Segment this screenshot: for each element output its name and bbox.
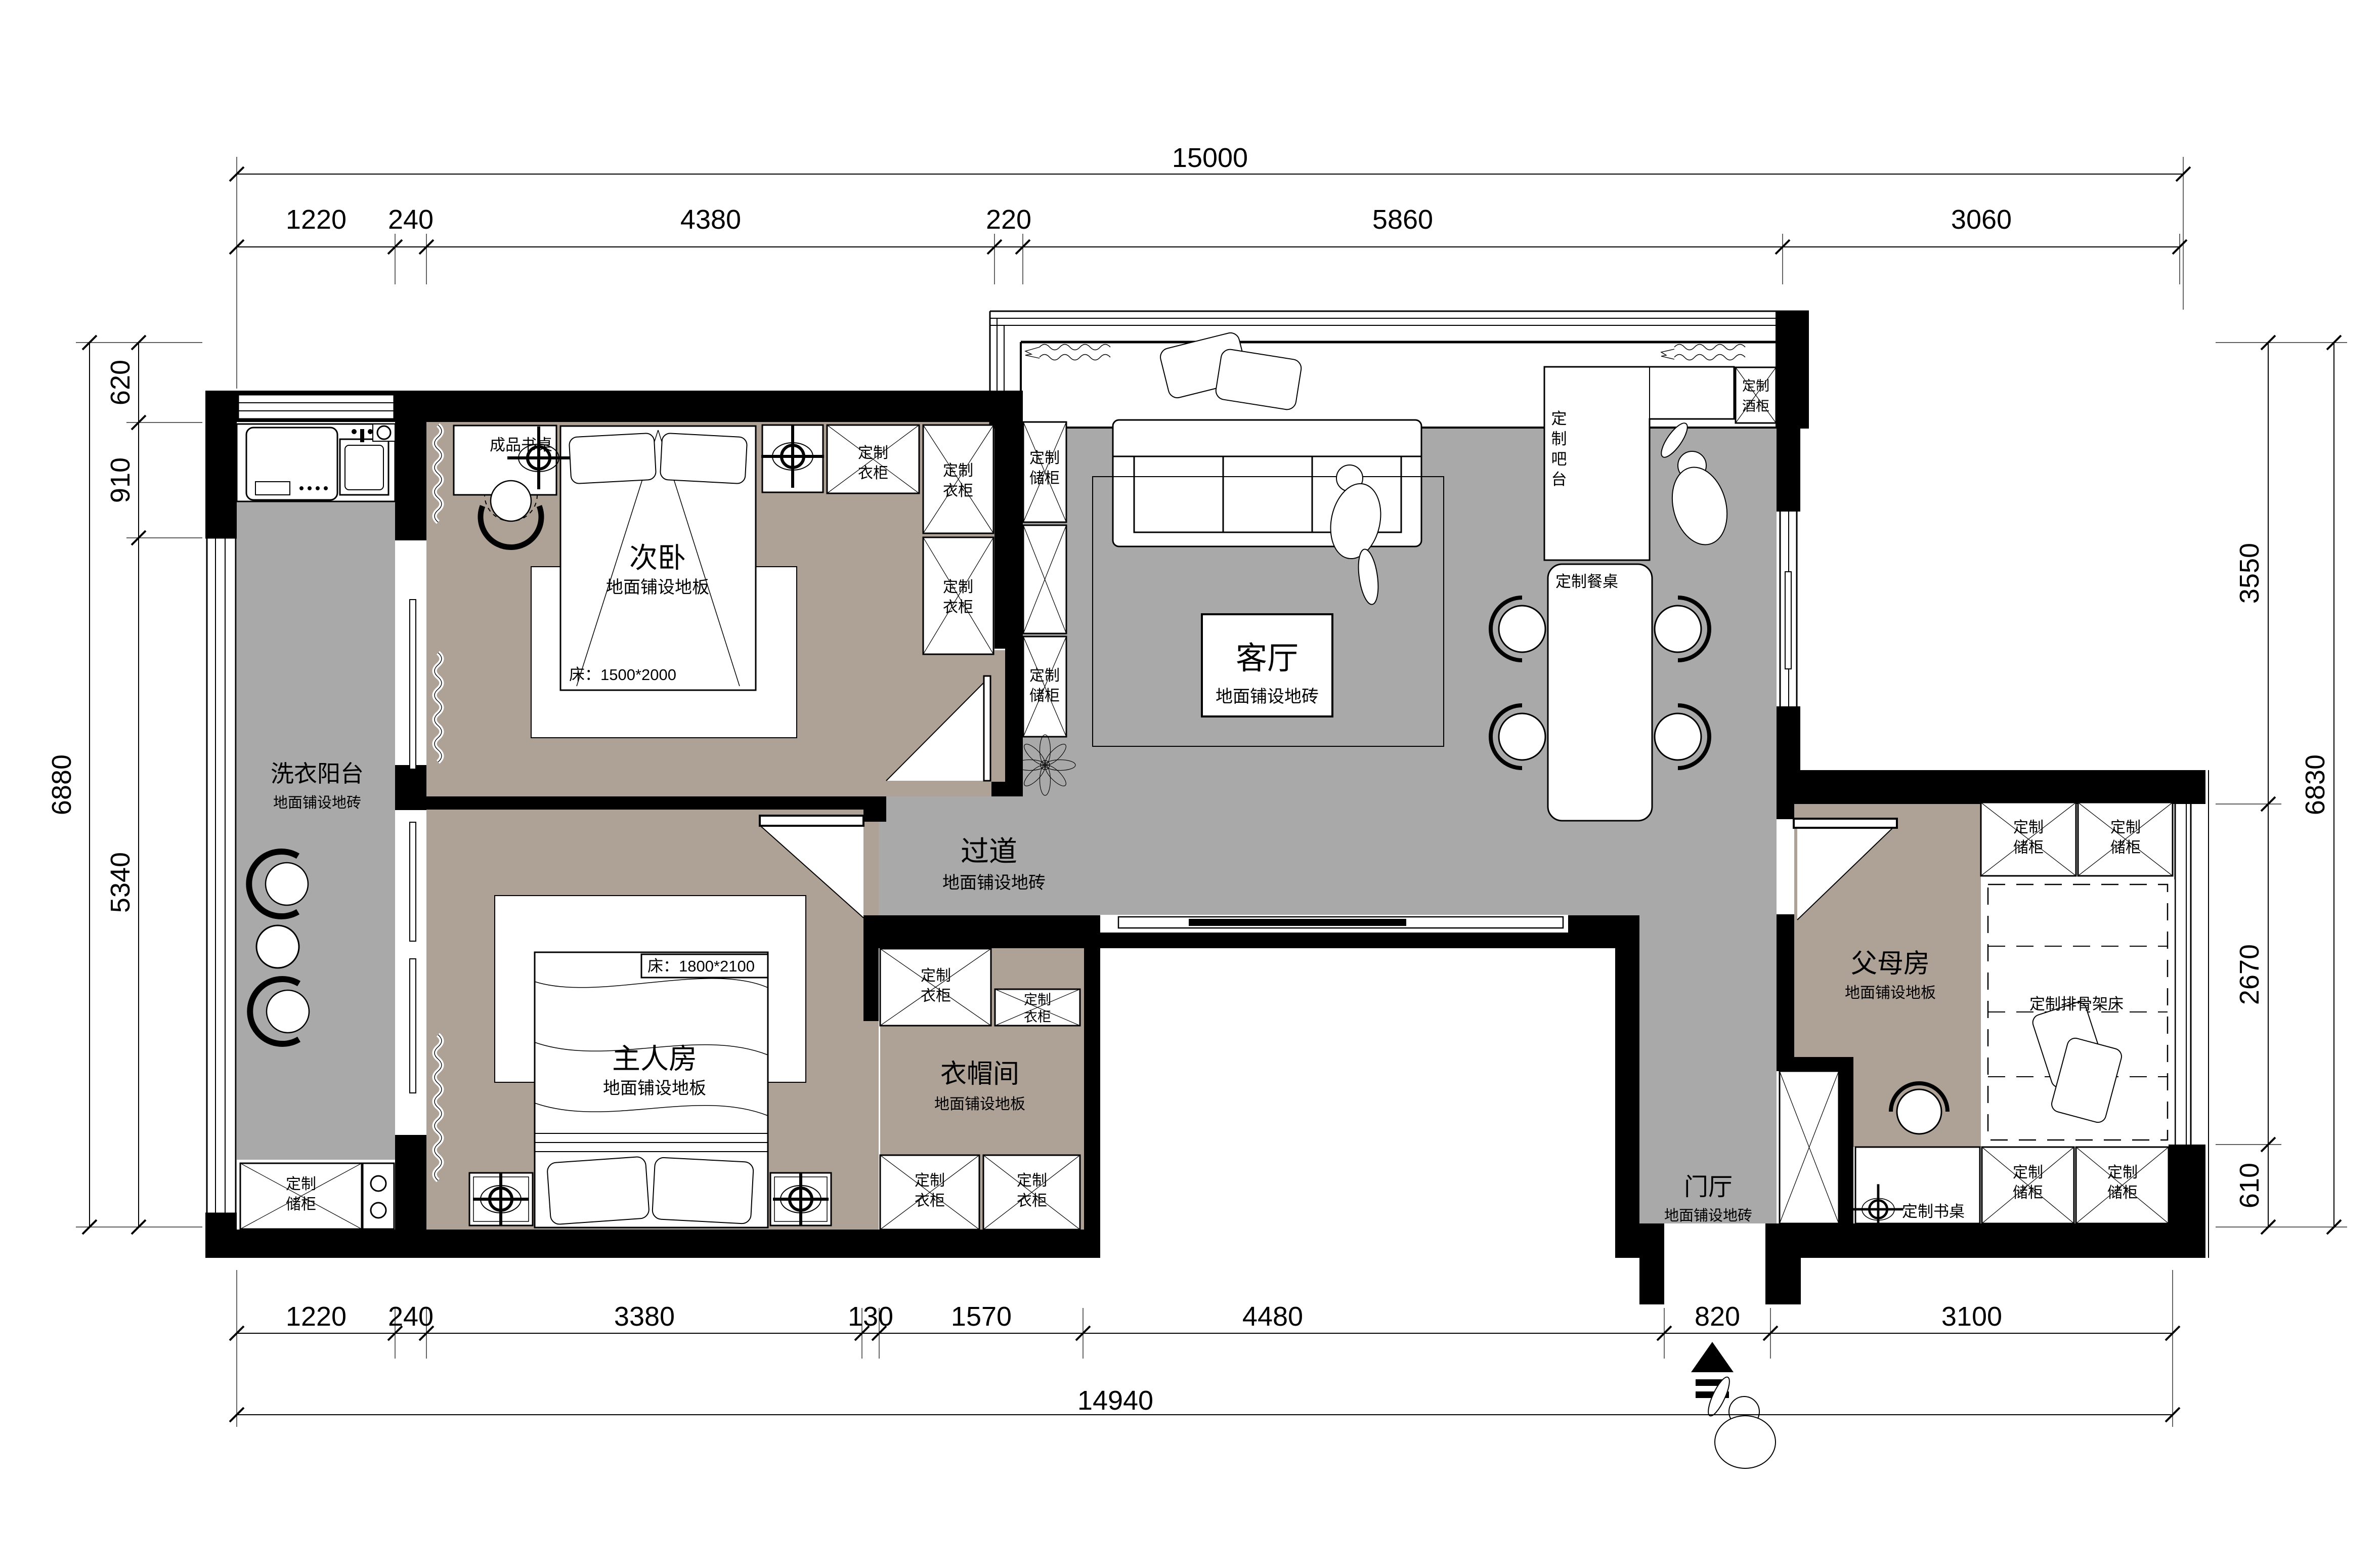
svg-text:220: 220 <box>986 204 1031 235</box>
svg-text:定制: 定制 <box>2110 819 2141 836</box>
svg-text:衣柜: 衣柜 <box>943 599 973 616</box>
svg-text:定制餐桌: 定制餐桌 <box>1555 573 1618 590</box>
svg-text:定制: 定制 <box>921 967 951 984</box>
svg-text:定制: 定制 <box>1029 450 1060 467</box>
svg-text:制: 制 <box>1551 430 1567 448</box>
svg-text:定制: 定制 <box>1742 378 1769 394</box>
svg-text:5340: 5340 <box>105 852 136 913</box>
svg-text:衣柜: 衣柜 <box>943 483 973 499</box>
svg-text:130: 130 <box>848 1301 893 1332</box>
svg-text:储柜: 储柜 <box>2013 1185 2043 1201</box>
svg-text:14940: 14940 <box>1077 1385 1153 1416</box>
svg-text:3100: 3100 <box>1941 1301 2002 1332</box>
svg-text:2670: 2670 <box>2234 944 2265 1005</box>
svg-text:父母房: 父母房 <box>1851 949 1930 979</box>
svg-text:定制: 定制 <box>858 445 888 461</box>
svg-text:储柜: 储柜 <box>2110 839 2141 856</box>
svg-text:6880: 6880 <box>47 754 77 815</box>
svg-text:衣柜: 衣柜 <box>1017 1193 1047 1209</box>
svg-text:3550: 3550 <box>2234 543 2265 604</box>
svg-text:240: 240 <box>388 1301 434 1332</box>
svg-text:地面铺设地砖: 地面铺设地砖 <box>942 873 1046 893</box>
svg-text:床：1800*2100: 床：1800*2100 <box>647 957 755 975</box>
svg-text:地面铺设地板: 地面铺设地板 <box>934 1096 1025 1113</box>
svg-text:610: 610 <box>2234 1163 2265 1208</box>
svg-text:衣柜: 衣柜 <box>921 988 951 1004</box>
svg-text:620: 620 <box>105 360 136 405</box>
svg-text:主人房: 主人房 <box>612 1043 697 1075</box>
svg-text:240: 240 <box>388 204 434 235</box>
svg-text:定制: 定制 <box>2013 1164 2043 1181</box>
svg-text:过道: 过道 <box>961 835 1017 867</box>
svg-text:地面铺设地砖: 地面铺设地砖 <box>1216 687 1319 706</box>
svg-text:储柜: 储柜 <box>1029 688 1060 704</box>
svg-text:床：1500*2000: 床：1500*2000 <box>569 666 676 684</box>
svg-text:酒柜: 酒柜 <box>1742 399 1769 414</box>
svg-text:台: 台 <box>1551 471 1567 488</box>
svg-text:定: 定 <box>1551 410 1567 428</box>
svg-text:1220: 1220 <box>286 204 347 235</box>
svg-text:定制: 定制 <box>915 1172 945 1189</box>
svg-text:储柜: 储柜 <box>286 1196 316 1213</box>
svg-text:1570: 1570 <box>951 1301 1012 1332</box>
svg-text:定制: 定制 <box>2013 819 2044 836</box>
svg-text:3060: 3060 <box>1951 204 2012 235</box>
svg-text:洗衣阳台: 洗衣阳台 <box>271 760 364 787</box>
svg-text:成品书桌: 成品书桌 <box>490 436 552 454</box>
svg-text:15000: 15000 <box>1172 143 1248 173</box>
svg-text:地面铺设地砖: 地面铺设地砖 <box>273 794 361 811</box>
svg-text:吧: 吧 <box>1551 450 1567 468</box>
svg-text:衣柜: 衣柜 <box>915 1193 945 1209</box>
svg-text:地面铺设地板: 地面铺设地板 <box>606 578 709 597</box>
svg-text:910: 910 <box>105 457 136 503</box>
svg-text:6830: 6830 <box>2300 754 2330 815</box>
svg-text:1220: 1220 <box>286 1301 347 1332</box>
svg-text:4380: 4380 <box>680 204 741 235</box>
svg-text:定制: 定制 <box>1017 1172 1047 1189</box>
svg-text:定制: 定制 <box>2107 1164 2138 1181</box>
svg-text:4480: 4480 <box>1242 1301 1303 1332</box>
svg-text:衣帽间: 衣帽间 <box>940 1060 1019 1089</box>
svg-text:3380: 3380 <box>614 1301 675 1332</box>
svg-text:地面铺设地板: 地面铺设地板 <box>603 1079 706 1098</box>
svg-text:定制: 定制 <box>943 579 973 596</box>
svg-text:次卧: 次卧 <box>629 542 686 574</box>
svg-text:定制: 定制 <box>1029 667 1060 684</box>
svg-text:地面铺设地砖: 地面铺设地砖 <box>1664 1207 1752 1224</box>
svg-text:门厅: 门厅 <box>1684 1174 1733 1201</box>
svg-text:衣柜: 衣柜 <box>1024 1009 1051 1025</box>
svg-text:客厅: 客厅 <box>1236 641 1299 676</box>
svg-text:地面铺设地板: 地面铺设地板 <box>1845 985 1936 1001</box>
svg-text:定制排骨架床: 定制排骨架床 <box>2029 995 2124 1013</box>
svg-text:定制书桌: 定制书桌 <box>1902 1203 1965 1220</box>
svg-text:5860: 5860 <box>1372 204 1433 235</box>
svg-text:衣柜: 衣柜 <box>858 465 888 482</box>
svg-text:定制: 定制 <box>286 1176 316 1193</box>
svg-text:定制: 定制 <box>1024 992 1051 1007</box>
svg-text:储柜: 储柜 <box>2013 839 2044 856</box>
svg-text:820: 820 <box>1695 1301 1740 1332</box>
svg-text:储柜: 储柜 <box>2107 1185 2138 1201</box>
svg-text:定制: 定制 <box>943 462 973 479</box>
svg-text:储柜: 储柜 <box>1029 470 1060 487</box>
